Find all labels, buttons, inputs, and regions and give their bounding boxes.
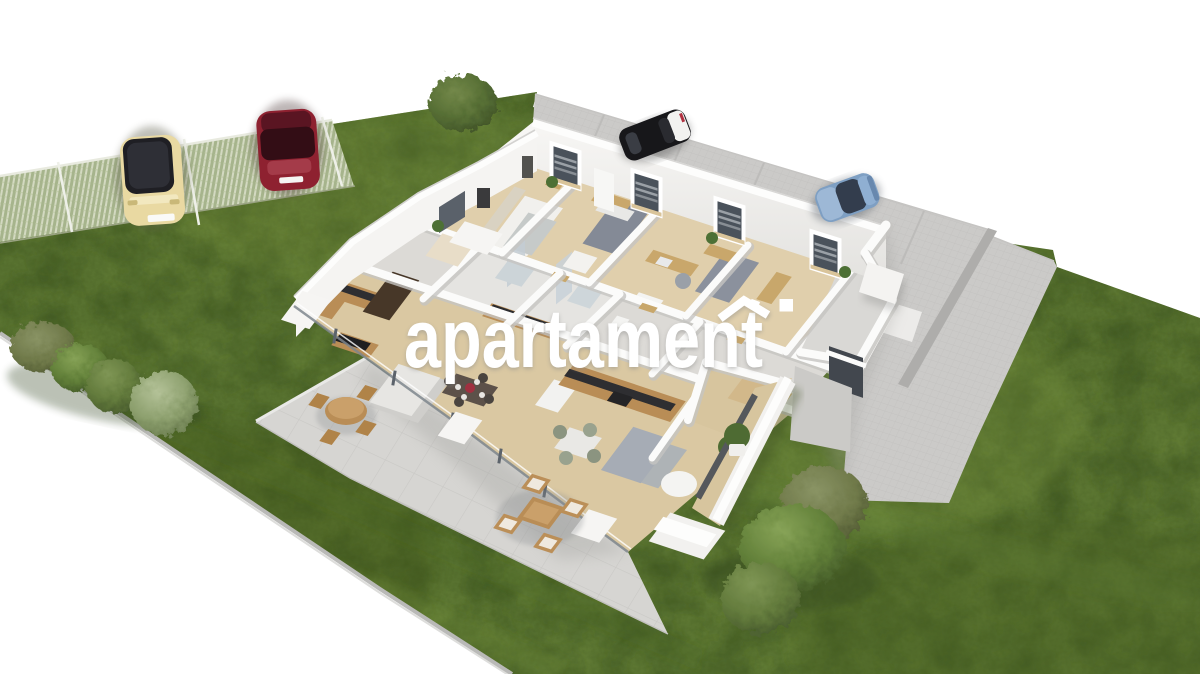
svg-text:apartament: apartament <box>404 292 763 385</box>
